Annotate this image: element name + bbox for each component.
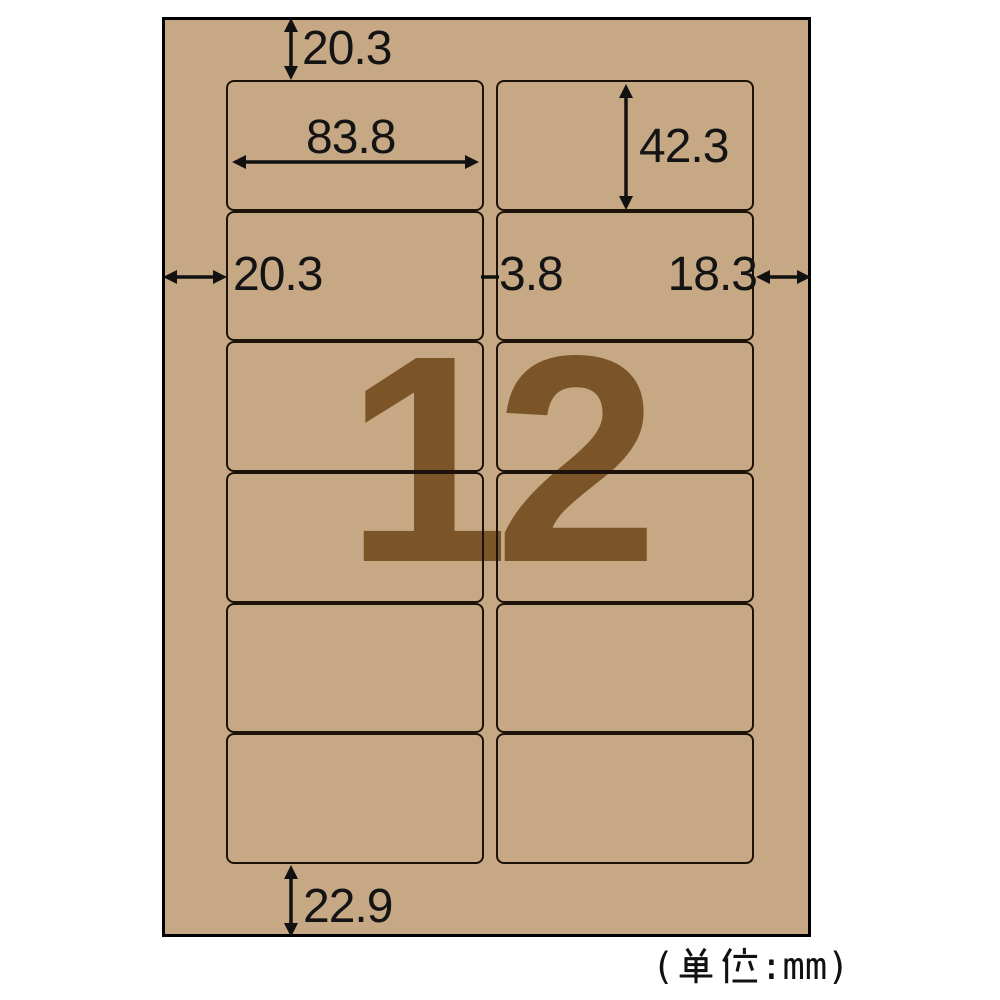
label-cell <box>496 341 754 472</box>
label-cell <box>496 472 754 603</box>
dim-top-margin: 20.3 <box>302 25 391 73</box>
dim-left-margin: 20.3 <box>233 251 322 299</box>
unit-note: ( :mm) <box>652 941 849 991</box>
dim-label-width: 83.8 <box>306 114 395 162</box>
dim-column-gap: 3.8 <box>499 251 563 299</box>
label-cell <box>226 603 484 734</box>
label-cell <box>226 472 484 603</box>
label-cell <box>226 733 484 864</box>
label-cell <box>496 603 754 734</box>
kanji-i-icon <box>718 945 758 987</box>
label-cell <box>496 733 754 864</box>
dim-right-margin: 18.3 <box>617 251 757 299</box>
kanji-tan-icon <box>676 945 716 987</box>
unit-note-open-paren: ( <box>652 945 674 988</box>
dim-bottom-margin: 22.9 <box>303 883 392 931</box>
dim-label-height: 42.3 <box>639 123 728 171</box>
unit-note-suffix: :mm) <box>760 945 849 988</box>
label-cell <box>226 341 484 472</box>
page: 12 <box>0 0 1000 1000</box>
